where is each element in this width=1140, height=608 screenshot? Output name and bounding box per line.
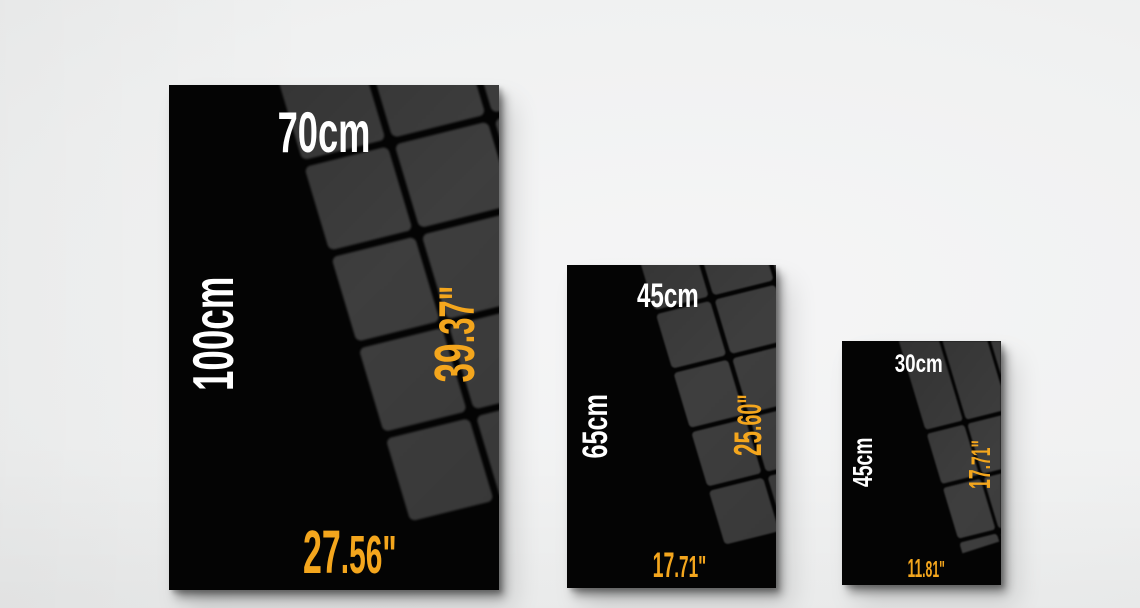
svg-text:17.71": 17.71" bbox=[963, 440, 997, 489]
svg-text:45cm: 45cm bbox=[848, 438, 879, 487]
svg-text:17.71": 17.71" bbox=[653, 546, 707, 586]
svg-text:100cm: 100cm bbox=[182, 277, 246, 391]
svg-text:27.56": 27.56" bbox=[303, 519, 397, 587]
svg-text:39.37": 39.37" bbox=[422, 286, 486, 383]
svg-text:11.81": 11.81" bbox=[908, 555, 945, 584]
svg-text:70cm: 70cm bbox=[278, 100, 371, 165]
svg-text:25.60": 25.60" bbox=[726, 394, 770, 456]
svg-text:45cm: 45cm bbox=[637, 277, 699, 315]
svg-text:30cm: 30cm bbox=[895, 349, 943, 377]
svg-text:65cm: 65cm bbox=[575, 394, 615, 458]
